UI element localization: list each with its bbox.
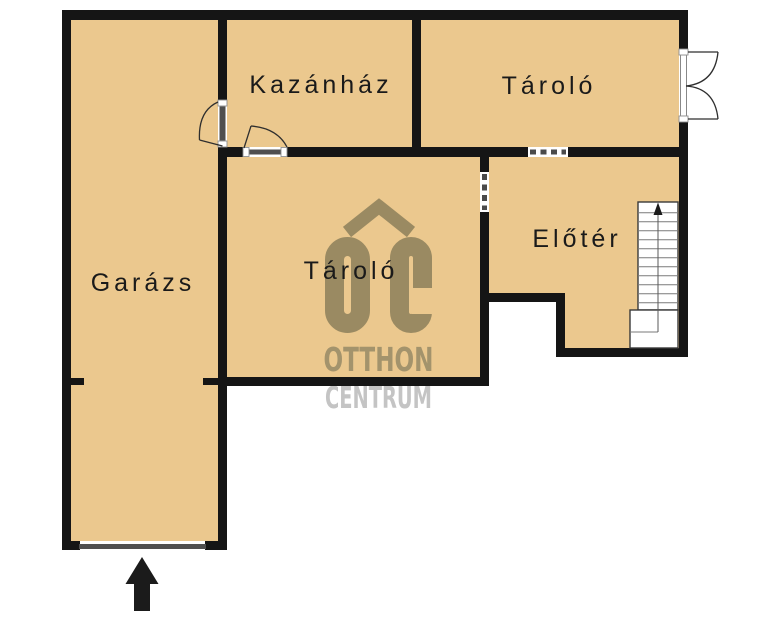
passage-storage-foyer-horizontal [528, 147, 568, 157]
wall-right-upper [679, 10, 688, 49]
wall-left [62, 10, 71, 550]
wall-mid-band-seg3 [568, 147, 688, 157]
door-jamb-cap [218, 141, 227, 147]
door-leaf-icon [249, 150, 281, 155]
passage-storage-foyer-vertical [480, 172, 489, 212]
floor-plan-drawing: OTTHON CENTRUM [0, 0, 759, 617]
wall-top [62, 10, 688, 20]
wall-mid-band-seg2 [287, 147, 528, 157]
door-jamb-cap [243, 148, 249, 157]
wall-garage-bottom-left-stub [62, 541, 80, 550]
wall-right-lower [679, 122, 688, 357]
double-door-exterior [679, 49, 718, 122]
watermark-letter-c-gap [412, 288, 442, 314]
room-label-storage-top: Tároló [502, 72, 597, 100]
room-label-garage: Garázs [91, 269, 196, 297]
wall-foyer-step-horizontal [480, 293, 565, 302]
wall-storage-middle-bottom [218, 377, 489, 386]
door-jamb-cap [218, 100, 227, 106]
door-swing-arc-icon [686, 52, 718, 86]
wall-mid-band-seg1 [218, 147, 243, 157]
wall-garage-right-lower [218, 147, 227, 550]
garage-door-icon [79, 544, 206, 549]
wall-storage-foyer-divider-upper [480, 157, 489, 172]
room-label-boiler-room: Kazánház [249, 71, 392, 99]
wall-foyer-step-vertical [556, 293, 565, 357]
stairs-landing [630, 310, 678, 348]
door-leaf-icon [220, 107, 226, 141]
door-jamb-cap [281, 148, 287, 157]
wall-tick-left [71, 378, 84, 385]
entry-arrow-icon [126, 557, 159, 611]
watermark-text-otthon: OTTHON [324, 340, 434, 379]
door-jamb-cap [679, 116, 688, 122]
door-frame [681, 55, 687, 116]
wall-bottom-right [556, 348, 688, 357]
watermark-text-centrum: CENTRUM [325, 381, 432, 416]
wall-garage-right-upper [218, 10, 227, 100]
floor-plan-canvas: OTTHON CENTRUM [0, 0, 759, 617]
room-label-foyer: Előtér [532, 225, 621, 253]
door-swing-arc-icon [686, 86, 718, 119]
wall-tick-right [203, 378, 218, 385]
wall-garage-bottom-right-stub [205, 541, 227, 550]
room-label-storage-middle: Tároló [304, 257, 399, 285]
wall-boiler-storage-divider [412, 20, 421, 147]
door-jamb-cap [679, 49, 688, 55]
